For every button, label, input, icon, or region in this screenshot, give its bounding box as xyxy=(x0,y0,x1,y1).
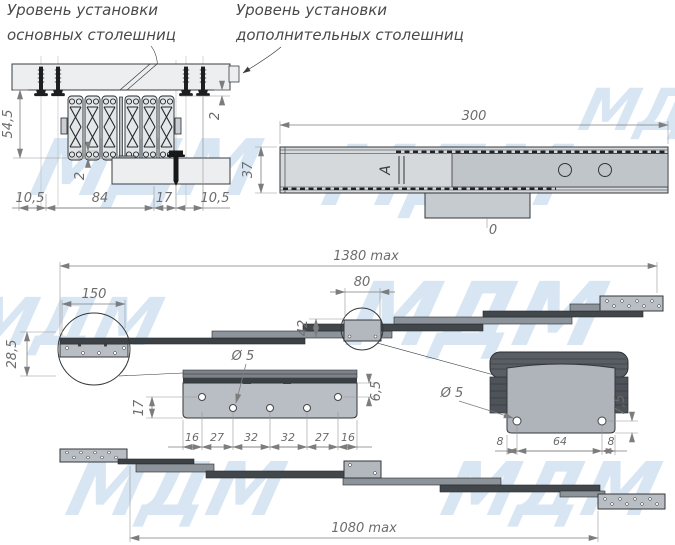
svg-text:7,5: 7,5 xyxy=(613,395,628,416)
detail-leader-left xyxy=(119,373,183,376)
watermark-text: МДМ xyxy=(573,76,675,144)
rail-segment xyxy=(206,471,351,478)
bracket-hole xyxy=(598,417,606,425)
svg-text:8: 8 xyxy=(608,435,615,448)
svg-text:27: 27 xyxy=(210,431,224,444)
additional-level-label-line2: дополнительных столешниц xyxy=(235,26,464,44)
additional-tabletop-board xyxy=(112,158,230,184)
technical-drawing-page: МДМ МДМ МДМ МДМ МДМ МДМ МДМ Уровень уста… xyxy=(0,0,675,545)
svg-text:84: 84 xyxy=(92,191,109,206)
left-end-plate xyxy=(60,344,128,357)
svg-text:8: 8 xyxy=(497,435,504,448)
svg-text:28,5: 28,5 xyxy=(5,340,20,369)
svg-text:54,5: 54,5 xyxy=(1,110,16,139)
rail-segment xyxy=(60,338,305,344)
svg-text:17: 17 xyxy=(156,191,173,206)
drawing-canvas: МДМ МДМ МДМ МДМ МДМ МДМ МДМ Уровень уста… xyxy=(0,0,675,545)
mounting-bracket-closed xyxy=(425,193,530,218)
svg-text:64: 64 xyxy=(553,435,567,448)
rail-segment xyxy=(343,478,501,485)
rail-segment xyxy=(303,324,483,331)
svg-text:32: 32 xyxy=(244,431,258,444)
svg-text:10,5: 10,5 xyxy=(16,191,45,206)
svg-text:10,5: 10,5 xyxy=(201,191,230,206)
svg-text:37: 37 xyxy=(241,161,256,178)
additional-level-leader xyxy=(243,47,281,73)
svg-text:Ø 5: Ø 5 xyxy=(231,349,255,364)
rail-segment xyxy=(394,317,572,324)
zero-mark: 0 xyxy=(489,223,497,238)
rail-segment xyxy=(483,311,643,317)
svg-text:150: 150 xyxy=(82,287,107,302)
left-end-plate-bottom xyxy=(60,449,127,462)
rail-edge-dark xyxy=(183,378,357,383)
svg-text:80: 80 xyxy=(354,275,371,290)
main-level-label-line1: Уровень установки xyxy=(7,1,158,19)
svg-text:6,5: 6,5 xyxy=(369,381,384,402)
svg-text:2: 2 xyxy=(208,112,223,120)
main-level-label-line2: основных столешниц xyxy=(7,26,176,44)
center-bracket-bar xyxy=(120,97,123,156)
rail-segment xyxy=(118,459,194,464)
bracket-hole xyxy=(513,417,521,425)
main-tabletop-board xyxy=(12,64,230,90)
svg-text:300: 300 xyxy=(462,109,487,124)
svg-text:16: 16 xyxy=(341,431,355,444)
svg-text:32: 32 xyxy=(281,431,295,444)
svg-text:42: 42 xyxy=(296,320,311,337)
slide-profiles-section xyxy=(61,96,181,160)
svg-text:2: 2 xyxy=(73,172,88,180)
svg-text:1080 max: 1080 max xyxy=(331,521,397,536)
inner-rail-member xyxy=(452,154,668,188)
right-end-plate-bottom xyxy=(598,494,665,509)
additional-level-label-line1: Уровень установки xyxy=(236,1,387,19)
svg-text:27: 27 xyxy=(315,431,329,444)
right-end-plate xyxy=(600,296,663,311)
svg-text:1380 max: 1380 max xyxy=(333,249,399,264)
svg-text:17: 17 xyxy=(132,399,147,416)
svg-text:Ø 5: Ø 5 xyxy=(440,386,464,401)
svg-text:16: 16 xyxy=(185,431,199,444)
middle-bracket-bottom xyxy=(344,461,381,478)
plate-notch xyxy=(243,380,251,384)
installation-level-labels: Уровень установки основных столешниц Уро… xyxy=(7,1,464,73)
right-bracket-detail: Ø 5 7,5 8 64 8 xyxy=(440,352,638,455)
section-marker: А xyxy=(378,165,394,176)
additional-level-block xyxy=(229,66,239,82)
middle-bracket xyxy=(344,320,381,341)
plate-notch xyxy=(283,380,291,384)
rail-segment xyxy=(136,464,214,472)
